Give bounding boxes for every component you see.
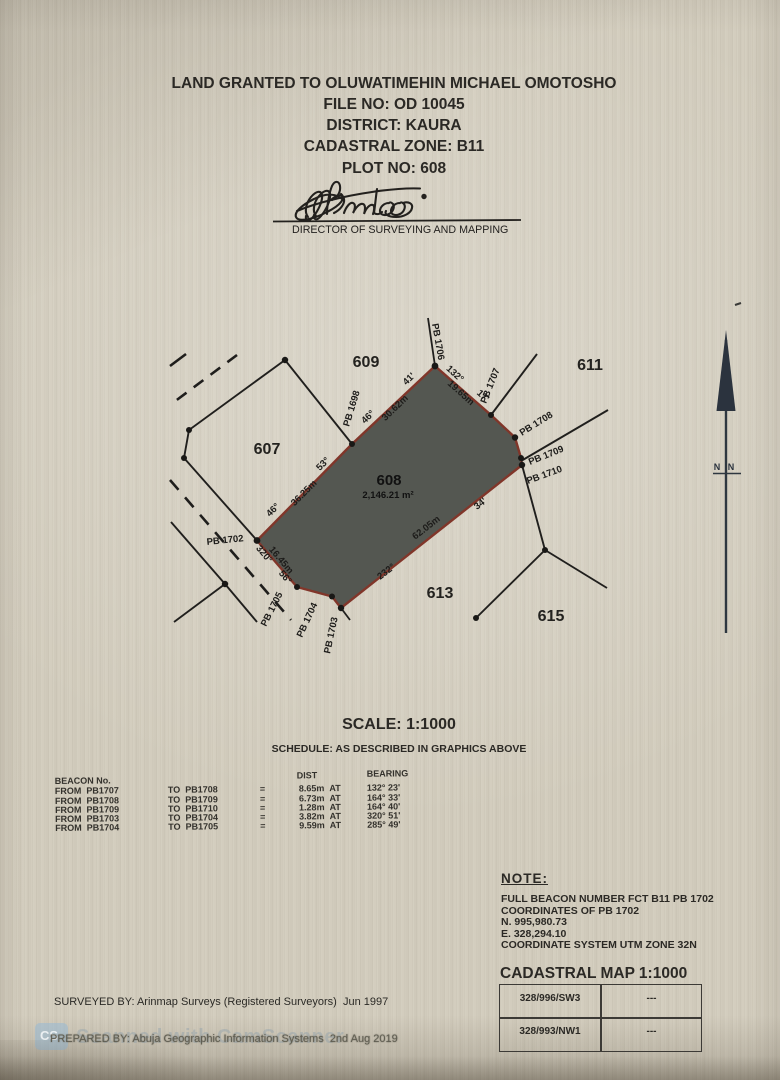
svg-text:N: N xyxy=(728,462,735,472)
svg-text:2,146.21 m²: 2,146.21 m² xyxy=(362,490,413,501)
svg-text:607: 607 xyxy=(254,441,281,458)
svg-text:611: 611 xyxy=(577,357,603,374)
svg-text:PB 1698: PB 1698 xyxy=(341,389,362,428)
svg-text:N: N xyxy=(714,462,721,472)
svg-text:609: 609 xyxy=(353,354,380,371)
svg-text:PB 1708: PB 1708 xyxy=(518,410,555,439)
svg-text:PB 1702: PB 1702 xyxy=(206,533,244,548)
svg-text:PB 1704: PB 1704 xyxy=(295,600,321,639)
svg-text:PB 1703: PB 1703 xyxy=(322,616,340,654)
svg-text:615: 615 xyxy=(538,608,565,625)
svg-text:608: 608 xyxy=(376,472,401,489)
svg-text:613: 613 xyxy=(427,585,454,602)
